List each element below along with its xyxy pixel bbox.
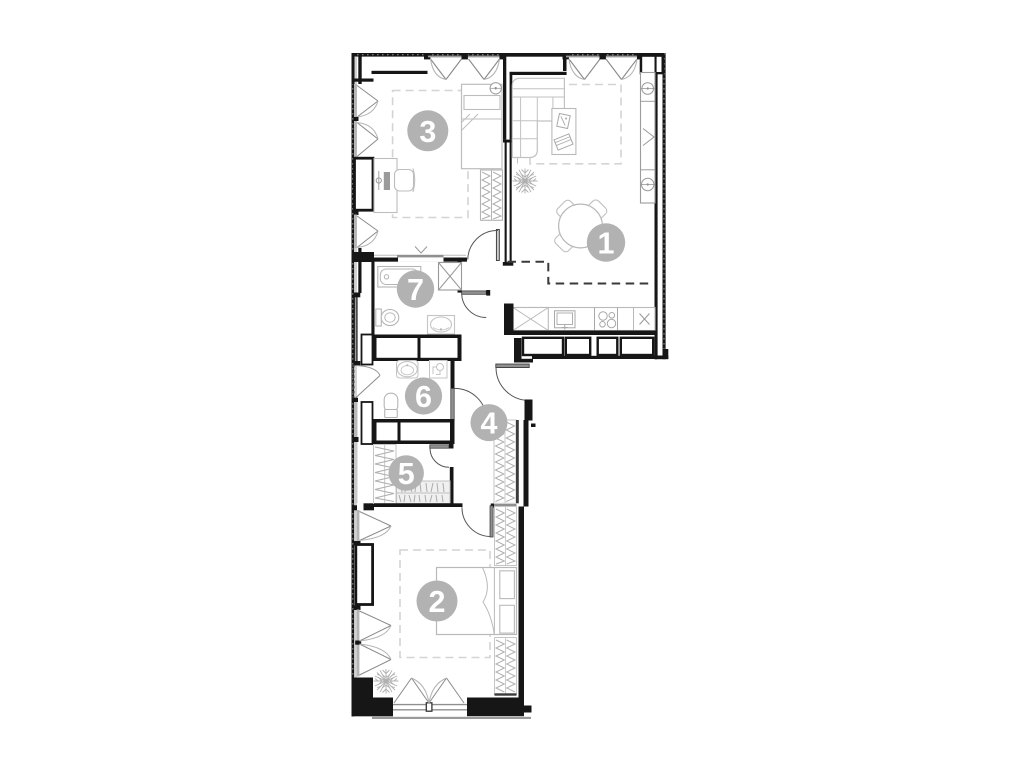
svg-text:3: 3: [419, 115, 436, 149]
svg-text:4: 4: [481, 407, 498, 441]
svg-text:7: 7: [407, 273, 424, 307]
svg-text:1: 1: [598, 227, 615, 261]
svg-text:5: 5: [398, 457, 415, 491]
svg-text:6: 6: [415, 380, 432, 414]
svg-text:2: 2: [429, 585, 446, 619]
